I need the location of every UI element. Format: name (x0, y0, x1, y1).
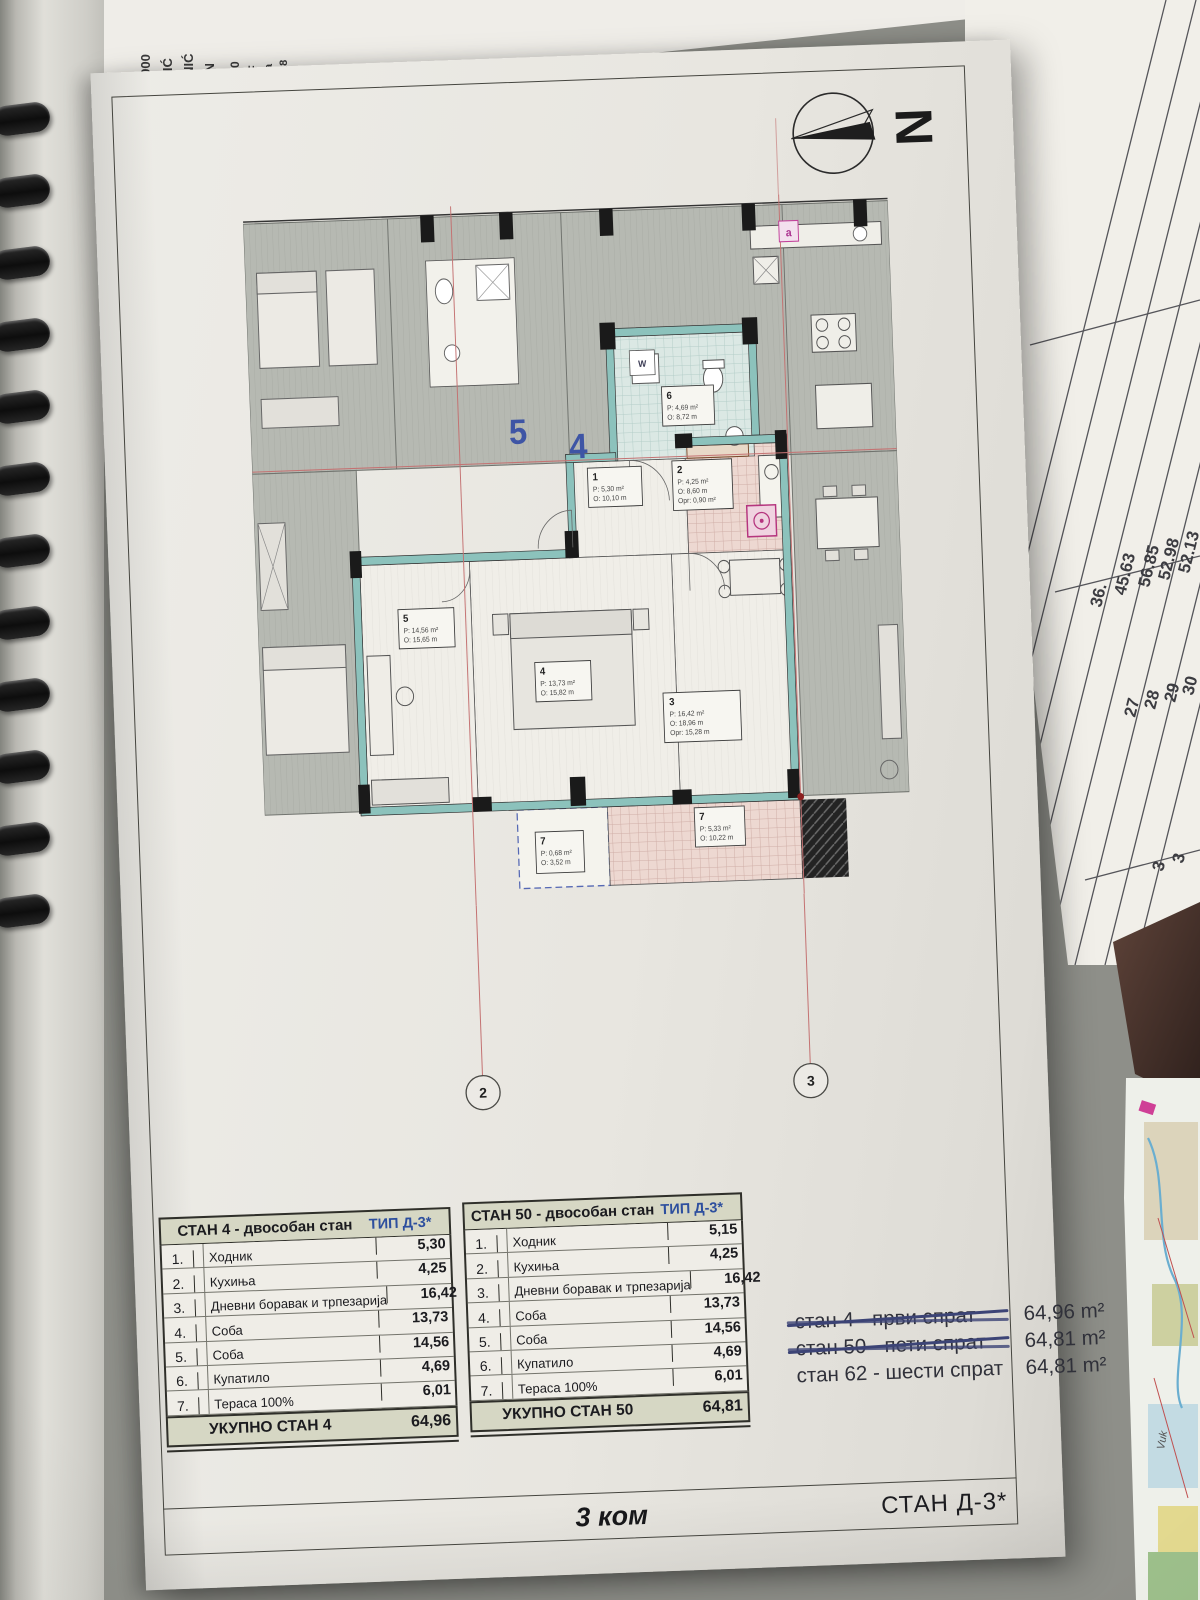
document-page: N (90, 40, 1065, 1591)
bg-table-rownum: 30 (1178, 674, 1200, 697)
paper-stack-edge (0, 0, 104, 1600)
sheet-code-label: СТАН Д-3* (881, 1487, 1018, 1520)
summary-value: 64,81 m² (1025, 1353, 1107, 1380)
summary-value: 64,96 m² (1023, 1299, 1105, 1326)
map-paper: Vuk (1118, 1078, 1200, 1600)
photo-scene: IC GROU KA RADIĆ RAGUJEV 00000000 ŠKOVIĆ… (0, 0, 1200, 1600)
dark-object (1095, 898, 1200, 1108)
unit-count-label: 3 ком (575, 1499, 649, 1533)
title-block: 3 ком СТАН Д-3* (163, 1477, 1018, 1555)
summary-value: 64,81 m² (1024, 1326, 1106, 1353)
